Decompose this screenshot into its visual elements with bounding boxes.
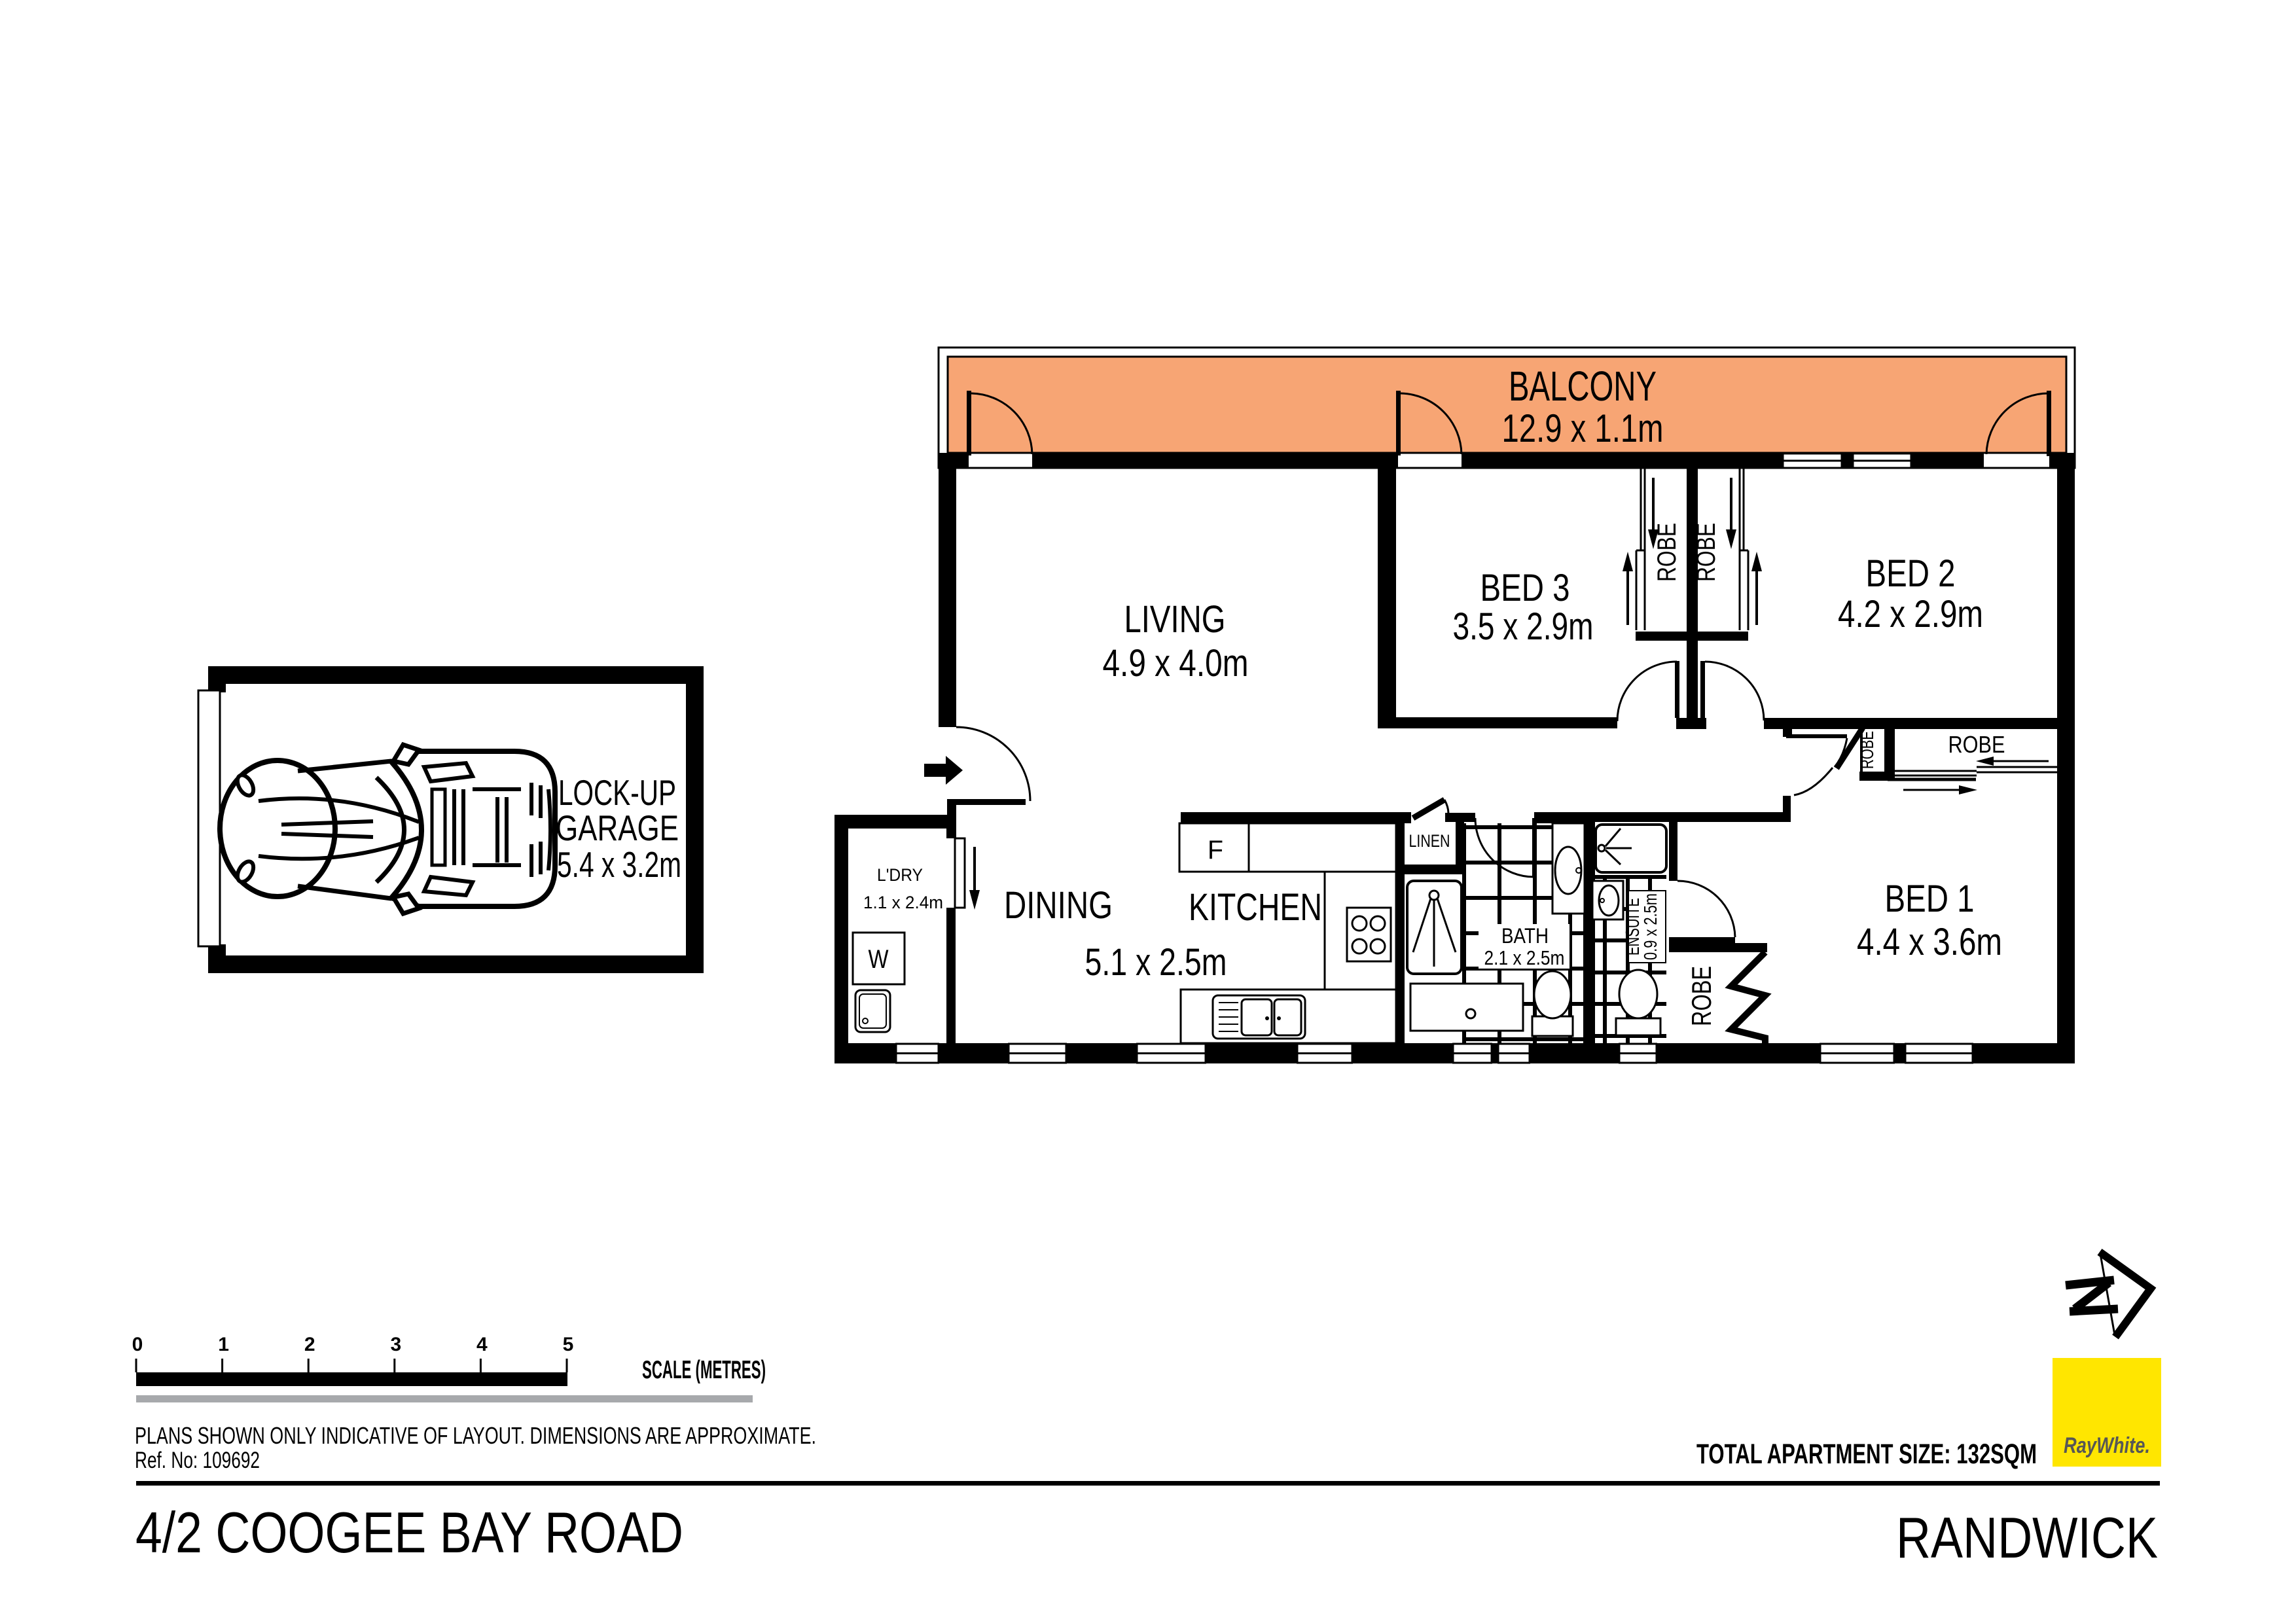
svg-text:1.1 x 2.4m: 1.1 x 2.4m xyxy=(863,893,943,912)
svg-text:SCALE (METRES): SCALE (METRES) xyxy=(642,1356,766,1384)
svg-text:ROBE: ROBE xyxy=(1653,523,1681,582)
svg-text:L'DRY: L'DRY xyxy=(877,865,923,885)
svg-text:RayWhite.: RayWhite. xyxy=(2064,1433,2150,1458)
svg-text:DINING: DINING xyxy=(1004,884,1113,927)
svg-text:0.9 x 2.5m: 0.9 x 2.5m xyxy=(1640,893,1660,960)
svg-text:BALCONY: BALCONY xyxy=(1509,363,1657,410)
svg-text:3: 3 xyxy=(390,1334,401,1355)
svg-text:1: 1 xyxy=(218,1334,229,1355)
svg-text:ROBE: ROBE xyxy=(1686,966,1717,1026)
svg-text:BED 2: BED 2 xyxy=(1866,552,1956,595)
svg-text:LOCK-UP: LOCK-UP xyxy=(558,772,676,813)
svg-text:BATH: BATH xyxy=(1501,924,1549,948)
svg-text:5.4 x 3.2m: 5.4 x 3.2m xyxy=(557,844,681,885)
svg-text:4.2 x 2.9m: 4.2 x 2.9m xyxy=(1838,593,1983,635)
svg-text:BED 1: BED 1 xyxy=(1885,878,1975,920)
svg-text:4: 4 xyxy=(476,1334,488,1355)
svg-text:12.9 x 1.1m: 12.9 x 1.1m xyxy=(1502,406,1664,450)
svg-text:4/2 COOGEE BAY ROAD: 4/2 COOGEE BAY ROAD xyxy=(135,1500,683,1565)
svg-text:5: 5 xyxy=(563,1334,574,1355)
svg-text:0: 0 xyxy=(132,1334,143,1355)
svg-text:2: 2 xyxy=(304,1334,315,1355)
svg-text:RANDWICK: RANDWICK xyxy=(1896,1505,2158,1570)
svg-text:ROBE: ROBE xyxy=(1692,523,1721,582)
svg-text:2.1 x 2.5m: 2.1 x 2.5m xyxy=(1484,946,1565,969)
svg-text:ROBE: ROBE xyxy=(1948,731,2005,758)
svg-text:LINEN: LINEN xyxy=(1409,831,1450,851)
svg-text:W: W xyxy=(869,945,889,974)
svg-text:GARAGE: GARAGE xyxy=(556,808,679,848)
svg-text:PLANS SHOWN ONLY INDICATIVE OF: PLANS SHOWN ONLY INDICATIVE OF LAYOUT. D… xyxy=(135,1422,816,1449)
svg-text:4.9 x 4.0m: 4.9 x 4.0m xyxy=(1103,642,1249,685)
svg-text:F: F xyxy=(1208,836,1223,865)
svg-text:ROBE: ROBE xyxy=(1857,731,1877,769)
svg-text:KITCHEN: KITCHEN xyxy=(1189,886,1322,929)
svg-text:4.4 x 3.6m: 4.4 x 3.6m xyxy=(1857,921,2002,963)
svg-text:3.5 x 2.9m: 3.5 x 2.9m xyxy=(1453,605,1594,648)
svg-text:BED 3: BED 3 xyxy=(1480,567,1570,609)
svg-text:5.1 x 2.5m: 5.1 x 2.5m xyxy=(1085,941,1227,984)
svg-text:Ref. No: 109692: Ref. No: 109692 xyxy=(135,1448,260,1473)
svg-text:TOTAL APARTMENT SIZE: 132SQM: TOTAL APARTMENT SIZE: 132SQM xyxy=(1696,1438,2037,1470)
svg-text:LIVING: LIVING xyxy=(1124,598,1226,641)
